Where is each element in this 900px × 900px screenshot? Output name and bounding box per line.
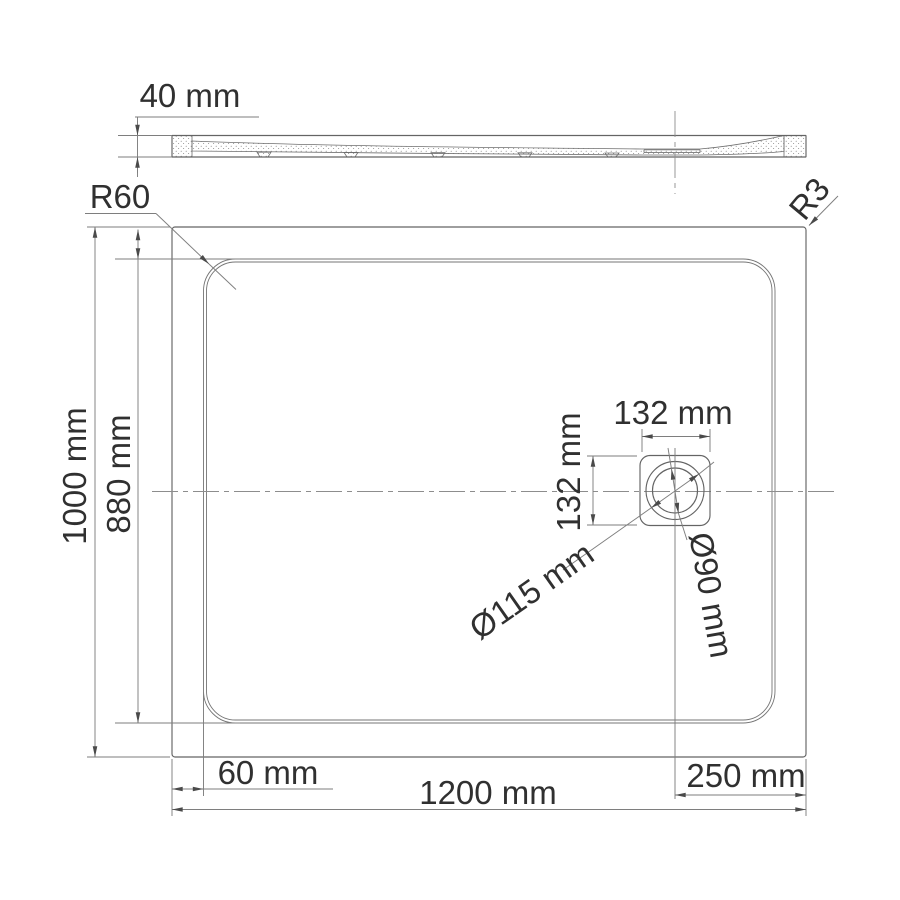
drain-inner-diameter-label: Ø90 mm — [682, 529, 740, 660]
technical-drawing-canvas: 40 mm R60 R3 1000 mm 880 mm 132 mm 132 m… — [0, 0, 900, 900]
edge-offset-label: 60 mm — [218, 754, 319, 791]
inner-corner-radius-label: R60 — [90, 178, 151, 215]
basin-edge-inner — [207, 262, 773, 720]
drain-offset-label: 250 mm — [686, 757, 805, 794]
right-rim-section — [784, 136, 806, 158]
floor-section — [192, 136, 784, 156]
dimension-drain-132-vertical — [587, 456, 637, 525]
drain-outer-diameter-label: Ø115 mm — [462, 535, 600, 647]
dimension-drain-132-horizontal — [642, 429, 710, 452]
drain-height-label: 132 mm — [550, 412, 587, 531]
leader-r60 — [85, 214, 236, 290]
thickness-label: 40 mm — [140, 77, 241, 114]
outer-corner-radius-label: R3 — [781, 171, 836, 227]
overall-depth-label: 1000 mm — [56, 407, 93, 545]
overall-width-label: 1200 mm — [419, 774, 557, 811]
plan-view — [152, 227, 834, 757]
side-section-view — [172, 111, 806, 194]
technical-drawing: 40 mm R60 R3 1000 mm 880 mm 132 mm 132 m… — [0, 0, 900, 900]
basin-edge-outer — [204, 259, 776, 723]
drain-width-label: 132 mm — [613, 394, 732, 431]
tray-outer-edge — [172, 227, 806, 757]
basin-depth-label: 880 mm — [100, 414, 137, 533]
left-rim-section — [172, 136, 192, 158]
